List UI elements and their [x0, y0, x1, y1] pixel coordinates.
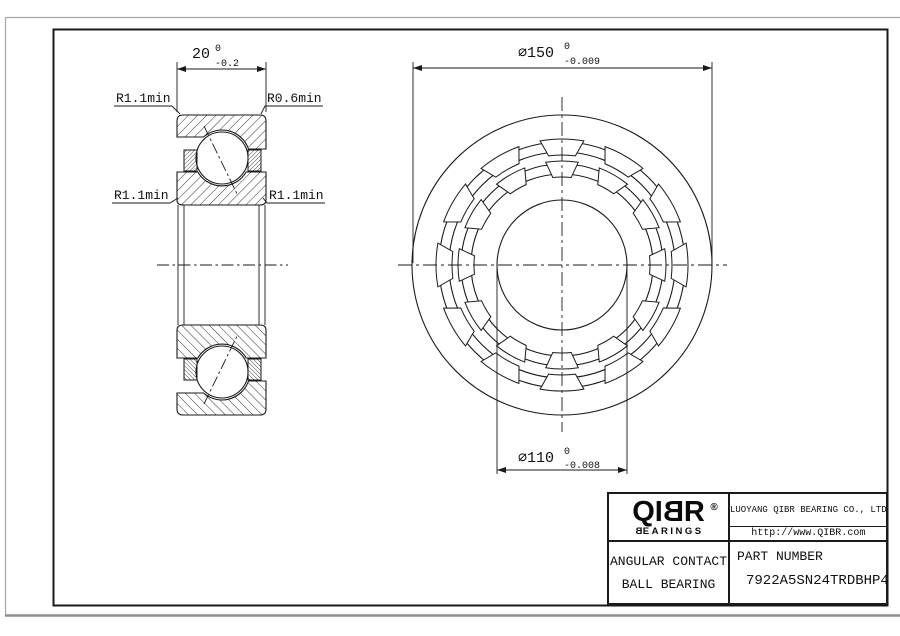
- width-dim-value: 20: [192, 46, 210, 63]
- product-type: ANGULAR CONTACT BALL BEARING: [609, 542, 728, 603]
- part-number-value: 7922A5SN24TRDBHP4: [737, 573, 889, 589]
- svg-text:R1.1min: R1.1min: [116, 91, 171, 106]
- ball-section: [196, 132, 248, 184]
- part-number-cell: PART NUMBER 7922A5SN24TRDBHP4: [728, 542, 889, 603]
- brand-logo: QIBR® BEARINGS: [609, 494, 728, 540]
- logo-mirrored-b: B: [663, 499, 684, 525]
- title-block-part-row: ANGULAR CONTACT BALL BEARING PART NUMBER…: [609, 540, 886, 603]
- radius-label-top-right: R0.6min: [261, 91, 323, 114]
- radius-label-mid-right: R1.1min: [263, 188, 325, 203]
- section-view: 20 0 -0.2 R1.1min R0.6min R1.1min R1.1mi…: [112, 44, 325, 415]
- width-dim-tol-lower: -0.2: [215, 59, 239, 70]
- product-type-line1: ANGULAR CONTACT: [610, 550, 727, 573]
- arrow-right-icon: [618, 467, 627, 473]
- logo-sub-mirrored-b: B: [633, 526, 642, 537]
- svg-text:R1.1min: R1.1min: [269, 188, 324, 203]
- bore-dim-tol-upper: 0: [564, 447, 570, 458]
- section-upper-half: [177, 115, 266, 205]
- cage-section-right: [248, 150, 261, 171]
- title-block: QIBR® BEARINGS LUOYANG QIBR BEARING CO.,…: [607, 492, 888, 605]
- radius-label-mid-left: R1.1min: [112, 188, 178, 203]
- section-lower-half: [177, 325, 266, 415]
- od-dim-tol-lower: -0.009: [564, 57, 600, 68]
- company-website: http://www.QIBR.com: [730, 527, 887, 539]
- logo-r: R: [684, 496, 705, 528]
- logo-qi: QI: [632, 496, 663, 528]
- product-type-line2: BALL BEARING: [622, 573, 716, 596]
- arrow-left-icon: [413, 65, 422, 71]
- svg-text:R0.6min: R0.6min: [267, 91, 322, 106]
- svg-text:R1.1min: R1.1min: [114, 188, 169, 203]
- arrow-right-icon: [257, 66, 266, 72]
- brand-logo-text: QIBR®: [632, 499, 705, 525]
- od-dim-tol-upper: 0: [564, 42, 570, 53]
- bore-dim-tol-lower: -0.008: [564, 461, 600, 472]
- od-dim-value: ∅150: [518, 45, 554, 62]
- arrow-right-icon: [703, 65, 712, 71]
- part-number-label: PART NUMBER: [737, 549, 889, 564]
- company-name: LUOYANG QIBR BEARING CO., LTD: [730, 494, 887, 527]
- radius-label-top-left: R1.1min: [114, 91, 180, 114]
- arrow-left-icon: [177, 66, 186, 72]
- bore-dim-value: ∅110: [518, 450, 554, 467]
- width-dim-tol-upper: 0: [215, 44, 221, 55]
- registered-trademark-icon: ®: [710, 495, 717, 521]
- drawing-sheet: 20 0 -0.2 R1.1min R0.6min R1.1min R1.1mi…: [0, 0, 900, 636]
- front-view: ∅150 0 -0.009 ∅110 0 -0.008: [398, 42, 727, 474]
- cage-section-left: [184, 150, 197, 171]
- title-block-header-row: QIBR® BEARINGS LUOYANG QIBR BEARING CO.,…: [609, 494, 886, 540]
- company-cell: LUOYANG QIBR BEARING CO., LTD http://www…: [728, 494, 887, 540]
- arrow-left-icon: [497, 467, 506, 473]
